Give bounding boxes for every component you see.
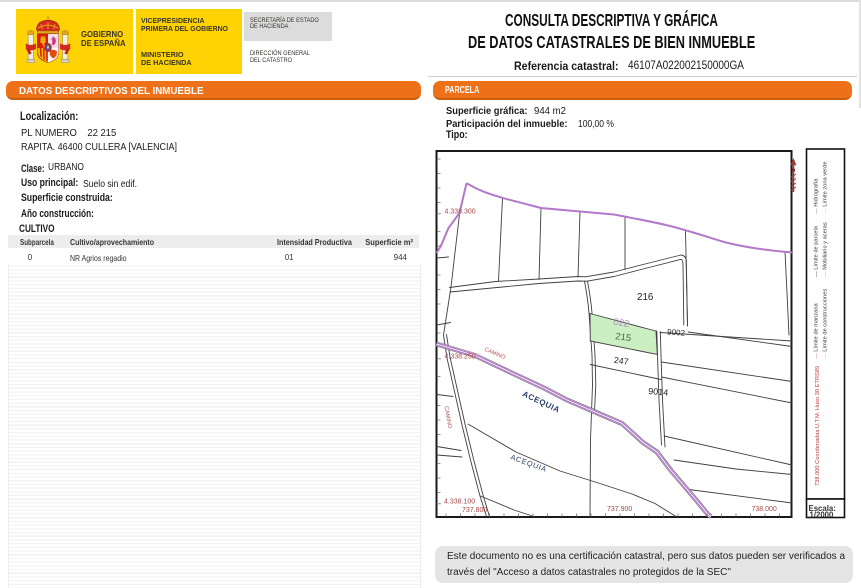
svg-text:— Límite zona verde: — Límite zona verde <box>823 162 829 214</box>
svg-text:9002: 9002 <box>667 328 686 338</box>
svg-text:9014: 9014 <box>648 386 669 398</box>
svg-text:738.000 Coordenadas U.T.M. Hus: 738.000 Coordenadas U.T.M. Huso 30 ETRS8… <box>815 366 821 486</box>
svg-text:215: 215 <box>615 331 632 344</box>
svg-text:216: 216 <box>637 292 654 303</box>
svg-text:1/2000: 1/2000 <box>810 510 835 519</box>
svg-text:— Límite de parcela: — Límite de parcela <box>814 225 820 277</box>
svg-text:247: 247 <box>613 355 629 367</box>
svg-text:— Límite de construcciones: — Límite de construcciones <box>823 289 829 359</box>
svg-text:4.338.100: 4.338.100 <box>444 498 475 505</box>
svg-text:738.000: 738.000 <box>752 506 777 513</box>
svg-text:4.338.250: 4.338.250 <box>445 353 476 360</box>
svg-text:— Mobiliario y aceras: — Mobiliario y aceras <box>823 222 829 277</box>
svg-text:4.338.300: 4.338.300 <box>445 208 476 215</box>
svg-text:737.900: 737.900 <box>607 506 632 513</box>
svg-text:— Límite de manzana: — Límite de manzana <box>814 303 820 359</box>
svg-text:737.800: 737.800 <box>462 507 487 514</box>
svg-text:— Hidrografía: — Hidrografía <box>814 178 820 214</box>
